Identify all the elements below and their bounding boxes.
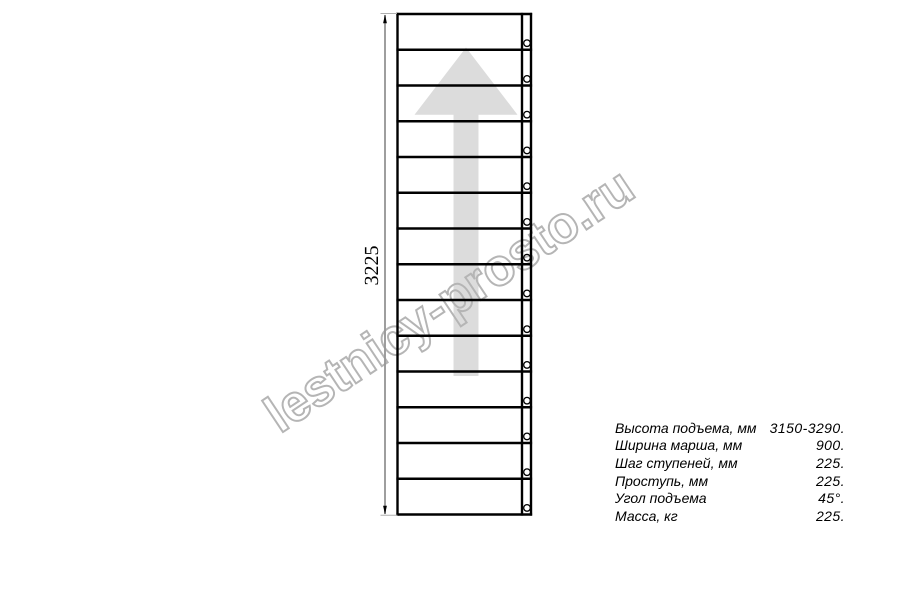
- svg-text:3225: 3225: [361, 246, 383, 286]
